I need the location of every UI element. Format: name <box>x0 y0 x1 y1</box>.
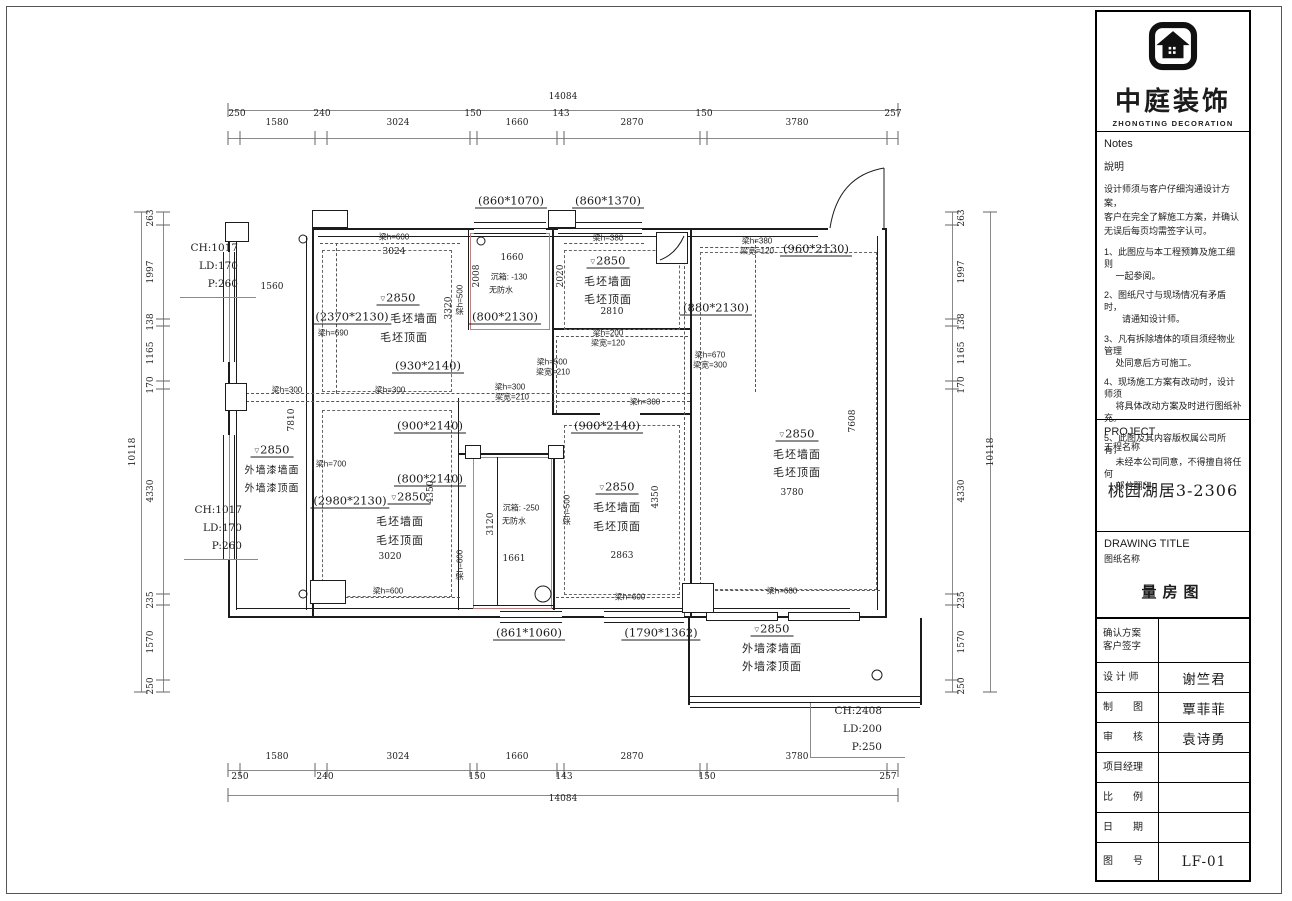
note-item: 1、此图应与本工程预算及施工细则 一起参阅。 <box>1104 246 1242 282</box>
room-label: 沉箱: -130 <box>491 272 527 283</box>
project-header-cn: 工程名称 <box>1104 440 1242 453</box>
notes-intro: 设计师须与客户仔细沟通设计方案， 客户在完全了解施工方案，并确认 无误后每页均需… <box>1104 183 1242 239</box>
project-section: PROJECT 工程名称 桃园湖居3-2306 <box>1097 420 1249 532</box>
dim-label: 138 <box>957 313 967 330</box>
dim-label: 4330 <box>146 480 156 503</box>
dim-label: 263 <box>957 209 967 226</box>
dim-label: 150 <box>698 772 715 782</box>
window-annotation: CH:2408 LD:200 P:250 <box>790 703 882 757</box>
row-value <box>1159 783 1249 812</box>
row-label: 项目经理 <box>1097 753 1159 782</box>
drawing-number: LF-01 <box>1159 843 1249 880</box>
inner-dim: 3120 <box>486 513 496 536</box>
brand-name-en: ZHONGTING DECORATION <box>1097 119 1249 128</box>
dim-label: 1570 <box>146 631 156 654</box>
dim-label: 235 <box>146 591 156 608</box>
dim-label: 10118 <box>986 438 996 467</box>
opening-label: (2370*2130) <box>312 310 391 325</box>
dim-label: 1580 <box>266 752 289 762</box>
dim-label: 3024 <box>387 752 410 762</box>
dim-label: 240 <box>316 772 333 782</box>
opening-label: (880*2130) <box>680 301 752 316</box>
dim-label: 1997 <box>146 261 156 284</box>
dim-label: 250 <box>957 677 967 694</box>
dim-label: 257 <box>879 772 896 782</box>
room-label: 沉箱: -250 <box>503 503 539 514</box>
room-label: 无防水 <box>502 516 526 527</box>
dim-label: 257 <box>884 109 901 119</box>
row-label: 比 例 <box>1097 783 1159 812</box>
inner-dim: 1661 <box>503 554 526 564</box>
table-row: 项目经理 <box>1097 752 1249 782</box>
room-label: 毛坯顶面 <box>380 329 428 345</box>
room-label: 外墙漆顶面 <box>742 658 802 674</box>
beam-label: 梁h=690 <box>318 328 348 339</box>
inner-dim: 2863 <box>611 551 634 561</box>
inner-dim: 7608 <box>848 410 858 433</box>
opening-label: (900*2140) <box>394 419 466 434</box>
drawing-title-value: 量房图 <box>1104 581 1242 602</box>
floor-plan: 14084 250 1580 240 3024 150 1660 143 287… <box>0 0 1095 901</box>
room-label: 毛坯墙面 <box>584 273 632 289</box>
table-row: 审 核 袁诗勇 <box>1097 722 1249 752</box>
level-mark: 2850 <box>751 622 794 637</box>
project-header-en: PROJECT <box>1104 426 1242 438</box>
beam-label: 梁h=600 <box>379 232 409 243</box>
beam-label: 梁h=300 <box>630 397 660 408</box>
level-mark: 2850 <box>377 291 420 306</box>
beam-label: 梁h=600 <box>455 550 466 580</box>
drawing-title-header-en: DRAWING TITLE <box>1104 538 1242 550</box>
room-label: 外墙漆墙面 <box>245 462 300 477</box>
row-label: 制 图 <box>1097 693 1159 722</box>
inner-dim: 2020 <box>556 265 566 288</box>
dim-label: 235 <box>957 591 967 608</box>
opening-label: (1790*1362) <box>621 626 700 641</box>
dim-label: 150 <box>695 109 712 119</box>
notes-header-en: Notes <box>1104 138 1242 150</box>
level-mark: 2850 <box>776 427 819 442</box>
dim-label: 2870 <box>621 118 644 128</box>
window-annotation: CH:1017 LD:170 P:260 <box>168 502 242 556</box>
dim-label: 10118 <box>128 438 138 467</box>
room-label: 毛坯顶面 <box>376 532 424 548</box>
inner-dim: 2008 <box>472 265 482 288</box>
cad-sheet: 14084 250 1580 240 3024 150 1660 143 287… <box>0 0 1292 901</box>
opening-label: (930*2140) <box>392 359 464 374</box>
beam-label: 梁宽=210 <box>536 367 570 378</box>
dim-label: 1580 <box>266 118 289 128</box>
house-logo-icon <box>1145 18 1201 74</box>
opening-label: (2980*2130) <box>310 494 389 509</box>
row-label: 确认方案 客户签字 <box>1097 619 1159 662</box>
notes-header-cn: 說明 <box>1104 158 1242 173</box>
level-mark: 2850 <box>388 490 431 505</box>
level-mark: 2850 <box>251 443 294 458</box>
dim-label: 1660 <box>506 118 529 128</box>
dim-label: 263 <box>146 209 156 226</box>
room-label: 毛坯墙面 <box>773 446 821 462</box>
dim-label: 240 <box>313 109 330 119</box>
row-label: 审 核 <box>1097 723 1159 752</box>
dim-label: 1165 <box>957 342 967 365</box>
dim-label: 170 <box>957 376 967 393</box>
dim-label: 150 <box>468 772 485 782</box>
row-value: 覃菲菲 <box>1159 693 1249 722</box>
dim-label: 2870 <box>621 752 644 762</box>
beam-label: 梁宽=300 <box>693 360 727 371</box>
room-label: 毛坯顶面 <box>584 291 632 307</box>
drawing-title-header-cn: 图纸名称 <box>1104 552 1242 565</box>
room-label: 毛坯顶面 <box>773 464 821 480</box>
room-label: 外墙漆墙面 <box>742 640 802 656</box>
room-label: 毛坯顶面 <box>593 518 641 534</box>
note-item: 2、图纸尺寸与现场情况有矛盾时， 请通知设计师。 <box>1104 289 1242 325</box>
dim-label: 1570 <box>957 631 967 654</box>
inner-dim: 1660 <box>501 253 524 263</box>
beam-label: 梁h=300 <box>375 385 405 396</box>
dim-label: 143 <box>555 772 572 782</box>
inner-dim: 1560 <box>261 282 284 292</box>
table-row: 图 号 LF-01 <box>1097 842 1249 880</box>
dim-label: 3024 <box>387 118 410 128</box>
dim-label: 170 <box>146 376 156 393</box>
beam-label: 梁h=700 <box>316 459 346 470</box>
beam-label: 梁h=600 <box>373 586 403 597</box>
dim-label: 1165 <box>146 342 156 365</box>
dim-label: 138 <box>146 313 156 330</box>
beam-label: 梁h=500 <box>562 495 573 525</box>
opening-label: (900*2140) <box>571 419 643 434</box>
inner-dim: 3024 <box>383 247 406 257</box>
dim-label: 1997 <box>957 261 967 284</box>
beam-label: 梁h=600 <box>615 592 645 603</box>
title-block: 中庭装饰 ZHONGTING DECORATION Notes 說明 设计师须与… <box>1095 10 1251 882</box>
table-row: 日 期 <box>1097 812 1249 842</box>
row-value <box>1159 813 1249 842</box>
dim-label: 14084 <box>549 92 578 102</box>
window-annotation: CH:1017 LD:170 P:260 <box>164 240 238 294</box>
row-value: 袁诗勇 <box>1159 723 1249 752</box>
dim-label: 250 <box>228 109 245 119</box>
inner-dim: 3020 <box>379 552 402 562</box>
row-label: 日 期 <box>1097 813 1159 842</box>
inner-dim: 3320 <box>444 297 454 320</box>
row-label: 设 计 师 <box>1097 663 1159 692</box>
dim-label: 1660 <box>506 752 529 762</box>
beam-label: 梁宽=210 <box>495 392 529 403</box>
dim-label: 14084 <box>549 794 578 804</box>
dim-label: 143 <box>552 109 569 119</box>
beam-label: 梁h=380 <box>593 233 623 244</box>
note-item: 3、凡有拆除墙体的项目须经物业管理 处同意后方可施工。 <box>1104 333 1242 369</box>
dim-label: 4330 <box>957 480 967 503</box>
room-label: 毛坯墙面 <box>390 310 438 326</box>
row-value <box>1159 619 1249 662</box>
inner-dim: 7810 <box>287 409 297 432</box>
row-value <box>1159 753 1249 782</box>
table-row: 设 计 师 谢竺君 <box>1097 662 1249 692</box>
notes-section: Notes 說明 设计师须与客户仔细沟通设计方案， 客户在完全了解施工方案，并确… <box>1097 132 1249 420</box>
opening-label: (800*2130) <box>469 310 541 325</box>
opening-label: (860*1070) <box>475 194 547 209</box>
table-row: 制 图 覃菲菲 <box>1097 692 1249 722</box>
table-row: 确认方案 客户签字 <box>1097 618 1249 662</box>
level-mark: 2850 <box>596 480 639 495</box>
logo-section: 中庭装饰 ZHONGTING DECORATION <box>1097 12 1249 132</box>
opening-label: (960*2130) <box>780 242 852 257</box>
table-row: 比 例 <box>1097 782 1249 812</box>
beam-label: 梁h=680 <box>767 586 797 597</box>
inner-dim: 3780 <box>781 488 804 498</box>
dim-label: 3780 <box>786 118 809 128</box>
opening-label: (861*1060) <box>493 626 565 641</box>
plan-overlay-graphics <box>0 0 1095 901</box>
room-label: 毛坯墙面 <box>376 513 424 529</box>
room-label: 外墙漆顶面 <box>245 480 300 495</box>
room-label: 毛坯墙面 <box>593 499 641 515</box>
project-name: 桃园湖居3-2306 <box>1104 477 1242 501</box>
beam-label: 梁宽=120 <box>740 246 774 257</box>
inner-dim: 2810 <box>601 307 624 317</box>
drawing-title-section: DRAWING TITLE 图纸名称 量房图 <box>1097 532 1249 618</box>
beam-label: 梁h=500 <box>455 285 466 315</box>
dim-label: 250 <box>146 677 156 694</box>
inner-dim: 4350 <box>651 486 661 509</box>
beam-label: 梁宽=120 <box>591 338 625 349</box>
room-label: 无防水 <box>489 285 513 296</box>
row-value: 谢竺君 <box>1159 663 1249 692</box>
signature-table: 确认方案 客户签字 设 计 师 谢竺君 制 图 覃菲菲 审 核 袁诗勇 项目经理… <box>1097 618 1249 880</box>
level-mark: 2850 <box>587 254 630 269</box>
opening-label: (860*1370) <box>572 194 644 209</box>
brand-name-cn: 中庭装饰 <box>1097 81 1249 118</box>
dim-label: 150 <box>464 109 481 119</box>
beam-label: 梁h=300 <box>272 385 302 396</box>
dim-label: 250 <box>231 772 248 782</box>
row-label: 图 号 <box>1097 843 1159 880</box>
note-item: 4、现场施工方案有改动时，设计师须 将具体改动方案及时进行图纸补充。 <box>1104 376 1242 425</box>
